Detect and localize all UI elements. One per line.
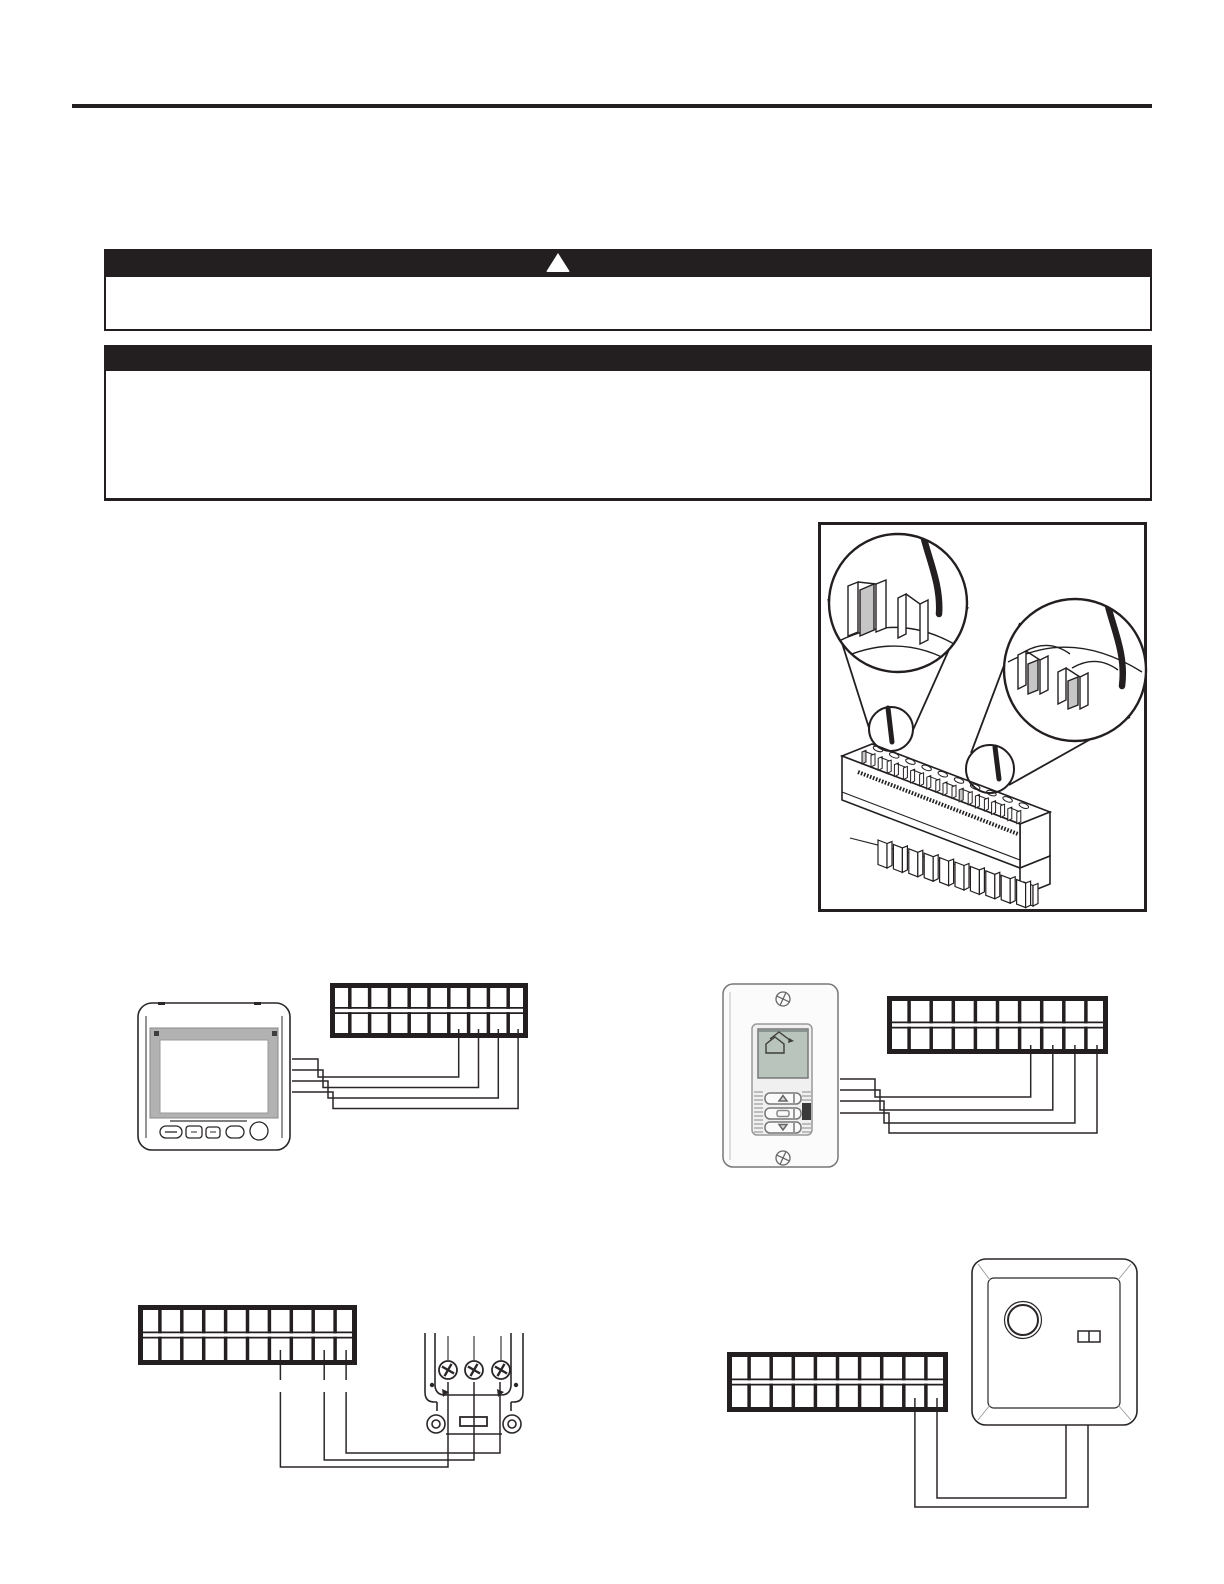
sensor-dot-left [154,1031,159,1036]
terminal-strip-knob [730,1355,946,1410]
wires-touchscreen [292,1029,518,1109]
figure-actuator-terminals [280,1333,523,1467]
figure-knob-device [915,1259,1137,1507]
wires-wall-thermostat [840,1045,1097,1133]
knob-device-frame [972,1259,1137,1425]
thermostat-display [160,1040,268,1113]
wires-actuator [280,1350,500,1467]
figure-touchscreen-thermostat [138,1002,518,1150]
terminal-strip-wall [890,999,1106,1052]
callout-circle-right [1004,599,1146,741]
screw-terminal-2 [464,1360,483,1379]
terminal-strip-touchscreen [333,986,526,1036]
mounting-ear-left [427,1415,445,1433]
screw-terminal-3 [491,1360,510,1379]
callout-circle-left [829,534,967,672]
screw-terminal-1 [438,1360,457,1379]
figure-terminal-block-detail [820,524,1147,911]
screw-terminals [438,1360,510,1379]
thermostat-buttons [765,1093,801,1133]
figures-canvas [0,0,1224,1584]
sensor-dot-right [272,1031,277,1036]
mounting-ear-right [503,1415,521,1433]
document-page [0,0,1224,1584]
terminal-strip-actuator [141,1308,355,1363]
